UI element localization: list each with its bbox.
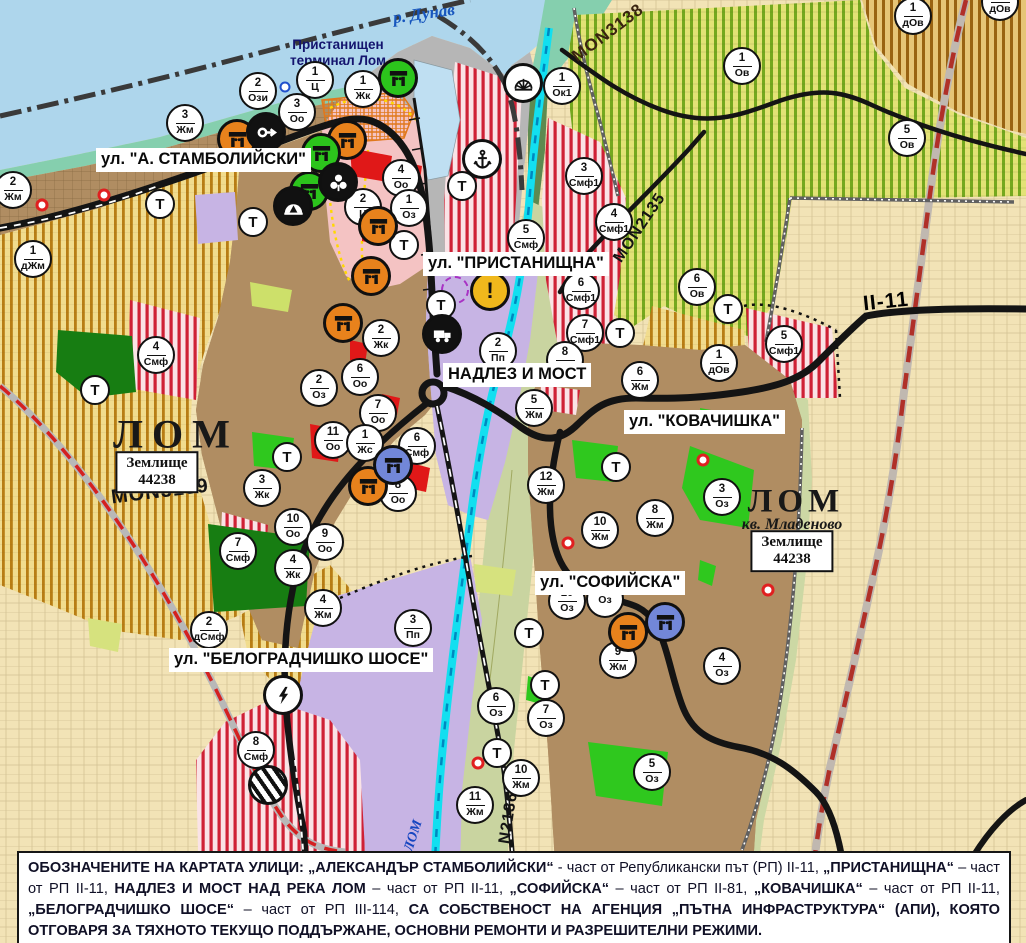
zone-marker-code: Ов <box>735 68 750 79</box>
zone-marker-number: 2 <box>495 338 501 350</box>
zone-marker-number: 1 <box>360 76 366 88</box>
transformer-marker: Т <box>145 189 175 219</box>
zone-marker-code: Оз <box>715 499 728 510</box>
transformer-marker: Т <box>605 318 635 348</box>
zone-marker-code: Оз <box>598 595 611 606</box>
zone-marker-code: Жм <box>525 410 542 421</box>
street-label-pristanishtna: ул. "ПРИСТАНИЩНА" <box>423 252 609 276</box>
zone-marker-number: 5 <box>649 759 655 771</box>
zone-marker: 4Смф <box>137 336 175 374</box>
zone-marker-code: дОв <box>708 365 729 376</box>
zemlishte-title: Землище <box>761 534 822 551</box>
zone-marker-code: Оо <box>318 544 333 555</box>
zone-marker-number: 4 <box>611 209 617 221</box>
zone-marker-code: Пп <box>406 630 420 641</box>
zone-marker-code: Оз <box>715 668 728 679</box>
zone-marker-code: Ок1 <box>552 88 571 99</box>
cave-icon <box>273 186 313 226</box>
zone-marker-code: Смф <box>514 240 538 251</box>
zone-marker-number: 6 <box>357 364 363 376</box>
zone-marker-number: 9 <box>322 529 328 541</box>
zone-marker-code: Жм <box>609 662 626 673</box>
zone-marker-code: Жм <box>176 125 193 136</box>
zone-marker: 1Ов <box>723 47 761 85</box>
zone-marker-code: Ози <box>248 93 268 104</box>
red-point-marker <box>562 537 575 550</box>
note-segment: – част от РП II-11, <box>863 881 1000 897</box>
zone-marker-number: 3 <box>581 163 587 175</box>
zone-marker: 6Смф1 <box>562 272 600 310</box>
zoning-map: р. Дунав ЛОМ Пристанищен терминал Лом ЛО… <box>0 0 1026 943</box>
zone-marker-number: 2 <box>10 177 16 189</box>
trefoil-icon <box>318 162 358 202</box>
zone-marker: 3Смф1 <box>565 157 603 195</box>
zone-marker: 11Жм <box>456 786 494 824</box>
zone-marker-number: 6 <box>493 693 499 705</box>
zone-marker-code: дОв <box>989 4 1010 15</box>
zone-marker-number: 2 <box>360 194 366 206</box>
transformer-marker: Т <box>238 207 268 237</box>
zone-marker-number: 12 <box>540 472 553 484</box>
zone-marker: 6Оз <box>477 687 515 725</box>
transformer-marker: Т <box>272 442 302 472</box>
zone-marker-code: Оо <box>353 379 368 390</box>
zone-marker-number: 1 <box>716 350 722 362</box>
street-label-nadlez: НАДЛЕЗ И МОСТ <box>443 363 591 387</box>
zone-marker: 12Жм <box>527 466 565 504</box>
zone-marker-number: 4 <box>320 595 326 607</box>
zone-marker-number: 3 <box>719 484 725 496</box>
zone-marker-code: Жк <box>356 91 371 102</box>
zone-marker: 2Ози <box>239 72 277 110</box>
zone-marker: 10Жм <box>502 759 540 797</box>
zone-marker-code: Смф <box>244 752 268 763</box>
zone-marker-number: 1 <box>406 195 412 207</box>
note-segment: - част от Републикански път (РП) II-11, <box>554 860 823 876</box>
zone-marker: 6Оо <box>341 358 379 396</box>
zone-marker-number: 2 <box>316 375 322 387</box>
zone-marker-code: Смф1 <box>769 346 799 357</box>
zone-marker-code: Жс <box>357 445 372 456</box>
zone-marker: 2дСмф <box>190 611 228 649</box>
zone-marker: 6Ов <box>678 268 716 306</box>
zone-marker-code: Жм <box>646 520 663 531</box>
zone-marker-number: 1 <box>312 67 318 79</box>
zone-marker-number: 4 <box>153 342 159 354</box>
sunrise-icon <box>503 63 543 103</box>
zone-marker-code: Ов <box>690 289 705 300</box>
zone-marker: 4Жк <box>274 549 312 587</box>
zemlishte-box-left: Землище 44238 <box>115 451 198 493</box>
zone-marker: 5Жм <box>515 389 553 427</box>
truck-icon <box>422 314 462 354</box>
zone-marker-number: 7 <box>235 538 241 550</box>
zone-marker-number: 7 <box>543 705 549 717</box>
zone-marker: 2Оз <box>300 369 338 407</box>
monument-blue-icon <box>373 445 413 485</box>
zone-marker: 4Смф1 <box>595 203 633 241</box>
note-segment: „ПРИСТАНИЩНА“ <box>823 860 954 876</box>
zone-marker-code: Ов <box>900 140 915 151</box>
map-note: ОБОЗНАЧЕНИТЕ НА КАРТАТА УЛИЦИ: „АЛЕКСАНД… <box>17 851 1011 943</box>
zone-marker: 3Жм <box>166 104 204 142</box>
monument-green-icon <box>378 58 418 98</box>
red-point-marker <box>762 584 775 597</box>
zone-marker: 8Жм <box>636 499 674 537</box>
zone-marker-code: Жм <box>512 780 529 791</box>
zone-marker: 4Оз <box>703 647 741 685</box>
zone-marker-number: 1 <box>997 0 1003 1</box>
zone-marker-number: 4 <box>398 165 404 177</box>
zone-marker-code: Оо <box>290 114 305 125</box>
zone-marker: 5Смф1 <box>765 325 803 363</box>
zemlishte-title: Землище <box>126 455 187 472</box>
zone-marker-code: Оз <box>402 210 415 221</box>
street-label-belogradchishko: ул. "БЕЛОГРАДЧИШКО ШОСЕ" <box>169 648 433 672</box>
zone-marker-code: Смф1 <box>569 178 599 189</box>
zone-marker-code: Оз <box>560 603 573 614</box>
monument-orange-icon <box>351 256 391 296</box>
zone-marker-number: 6 <box>414 433 420 445</box>
red-point-marker <box>697 454 710 467</box>
zone-marker-code: Оз <box>539 720 552 731</box>
zone-marker-number: 8 <box>562 347 568 359</box>
zone-marker-number: 11 <box>469 792 481 804</box>
zone-marker-code: дОв <box>902 18 923 29</box>
note-segment: „КОВАЧИШКА“ <box>754 881 863 897</box>
zone-marker-number: 6 <box>637 367 643 379</box>
zone-marker: 9Оо <box>306 523 344 561</box>
zemlishte-number: 44238 <box>761 551 822 568</box>
note-segment: ОБОЗНАЧЕНИТЕ НА КАРТАТА УЛИЦИ: „АЛЕКСАНД… <box>28 860 554 876</box>
zone-marker: 3Оз <box>703 478 741 516</box>
note-segment: НАДЛЕЗ И МОСТ НАД РЕКА ЛОМ <box>114 881 365 897</box>
zone-marker-number: 3 <box>294 99 300 111</box>
zone-marker-number: 1 <box>910 3 916 15</box>
zone-marker-number: 5 <box>531 395 537 407</box>
red-point-marker <box>98 189 111 202</box>
street-label-sofiyska: ул. "СОФИЙСКА" <box>535 571 685 595</box>
monument-orange-icon <box>323 303 363 343</box>
zone-marker-number: 1 <box>362 430 368 442</box>
zone-marker-code: Смф1 <box>566 293 596 304</box>
note-segment: „БЕЛОГРАДЧИШКО ШОСЕ“ <box>28 902 234 918</box>
zone-marker-number: 3 <box>259 475 265 487</box>
zone-marker-number: 2 <box>255 78 261 90</box>
zone-marker-number: 7 <box>582 320 588 332</box>
zone-marker-code: Жк <box>286 570 301 581</box>
transformer-marker: Т <box>80 375 110 405</box>
zone-marker-code: дЖм <box>21 261 45 272</box>
zone-marker: 7Оз <box>527 699 565 737</box>
zone-marker-code: Смф <box>226 553 250 564</box>
transformer-marker: Т <box>601 452 631 482</box>
zone-marker-code: Оз <box>312 390 325 401</box>
zone-marker-number: 6 <box>578 278 584 290</box>
zone-marker: 2Жк <box>362 319 400 357</box>
zone-marker-code: Ц <box>311 82 319 93</box>
key-icon <box>246 112 286 152</box>
zone-marker-code: Смф <box>144 357 168 368</box>
zone-marker: 6Жм <box>621 361 659 399</box>
transformer-marker: Т <box>530 670 560 700</box>
zone-marker-number: 8 <box>652 505 658 517</box>
zone-marker-number: 5 <box>523 225 529 237</box>
monument-orange-icon <box>358 206 398 246</box>
zone-marker-number: 5 <box>781 331 787 343</box>
zone-marker-number: 10 <box>594 517 607 529</box>
zone-marker-code: Жм <box>314 610 331 621</box>
zone-marker: 4Жм <box>304 589 342 627</box>
note-segment: – част от РП II-11, <box>366 881 510 897</box>
zone-marker-number: 4 <box>290 555 296 567</box>
zone-marker: 1дЖм <box>14 240 52 278</box>
street-label-stamboliyski: ул. "А. СТАМБОЛИЙСКИ" <box>96 148 311 172</box>
zone-marker-number: 7 <box>375 400 381 412</box>
zone-marker-number: 2 <box>378 325 384 337</box>
zone-marker-number: 10 <box>515 765 528 777</box>
zone-marker-number: 3 <box>410 615 416 627</box>
zone-marker-code: Оо <box>326 442 341 453</box>
zone-marker-code: Смф1 <box>599 224 629 235</box>
zone-marker-number: 4 <box>719 653 725 665</box>
lightning-icon <box>263 675 303 715</box>
road-number-label: II-11 <box>862 288 910 317</box>
zone-marker: 1Жк <box>344 70 382 108</box>
zone-marker: 7Смф <box>219 532 257 570</box>
zone-marker: 3Пп <box>394 609 432 647</box>
zone-marker-code: Жм <box>4 192 21 203</box>
blue-point-marker <box>280 82 291 93</box>
zone-marker: 3Жк <box>243 469 281 507</box>
zone-marker-code: Жм <box>631 382 648 393</box>
zone-marker: 1Ок1 <box>543 67 581 105</box>
zone-marker-code: Оз <box>645 774 658 785</box>
transformer-marker: Т <box>514 618 544 648</box>
zone-marker-code: Оо <box>391 495 406 506</box>
note-segment: – част от РП II-81, <box>609 881 754 897</box>
zone-marker-number: 6 <box>694 274 700 286</box>
zone-marker-code: дСмф <box>193 632 224 643</box>
zone-marker-number: 11 <box>327 427 339 439</box>
zone-marker-code: Жм <box>466 807 483 818</box>
zone-marker-code: Жм <box>537 487 554 498</box>
street-label-kovachishka: ул. "КОВАЧИШКА" <box>624 410 785 434</box>
zemlishte-number: 44238 <box>126 472 187 489</box>
lom-mladenovo-label: ЛОМ <box>748 484 844 521</box>
monument-orange-icon <box>608 612 648 652</box>
zone-marker: 8Смф <box>237 731 275 769</box>
zone-marker: 10Жм <box>581 511 619 549</box>
zone-marker-number: 5 <box>904 125 910 137</box>
anchor-icon <box>462 139 502 179</box>
zone-marker-number: 1 <box>739 53 745 65</box>
monument-blue-icon <box>645 602 685 642</box>
zone-marker-code: Оз <box>489 708 502 719</box>
zone-marker-code: Жк <box>255 490 270 501</box>
zone-marker-number: 1 <box>30 246 36 258</box>
transformer-marker: Т <box>713 294 743 324</box>
note-segment: „СОФИЙСКА“ <box>510 881 610 897</box>
zone-marker-code: Жм <box>591 532 608 543</box>
zone-marker-code: Жк <box>374 340 389 351</box>
zone-marker-number: 8 <box>253 737 259 749</box>
zone-marker-number: 2 <box>206 617 212 629</box>
zone-marker: 5Ов <box>888 119 926 157</box>
zone-marker-number: 10 <box>287 514 300 526</box>
warning-icon: ! <box>470 271 510 311</box>
zone-marker: 1дОв <box>700 344 738 382</box>
zemlishte-box-right: Землище 44238 <box>750 530 833 572</box>
zone-marker-number: 3 <box>182 110 188 122</box>
zone-marker: 5Оз <box>633 753 671 791</box>
zone-marker-number: 1 <box>559 73 565 85</box>
zone-marker-code: Оо <box>371 415 386 426</box>
zone-marker-code: Оо <box>286 529 301 540</box>
note-segment: – част от РП III-114, <box>234 902 409 918</box>
red-point-marker <box>36 199 49 212</box>
striped-crossing-icon <box>248 765 288 805</box>
